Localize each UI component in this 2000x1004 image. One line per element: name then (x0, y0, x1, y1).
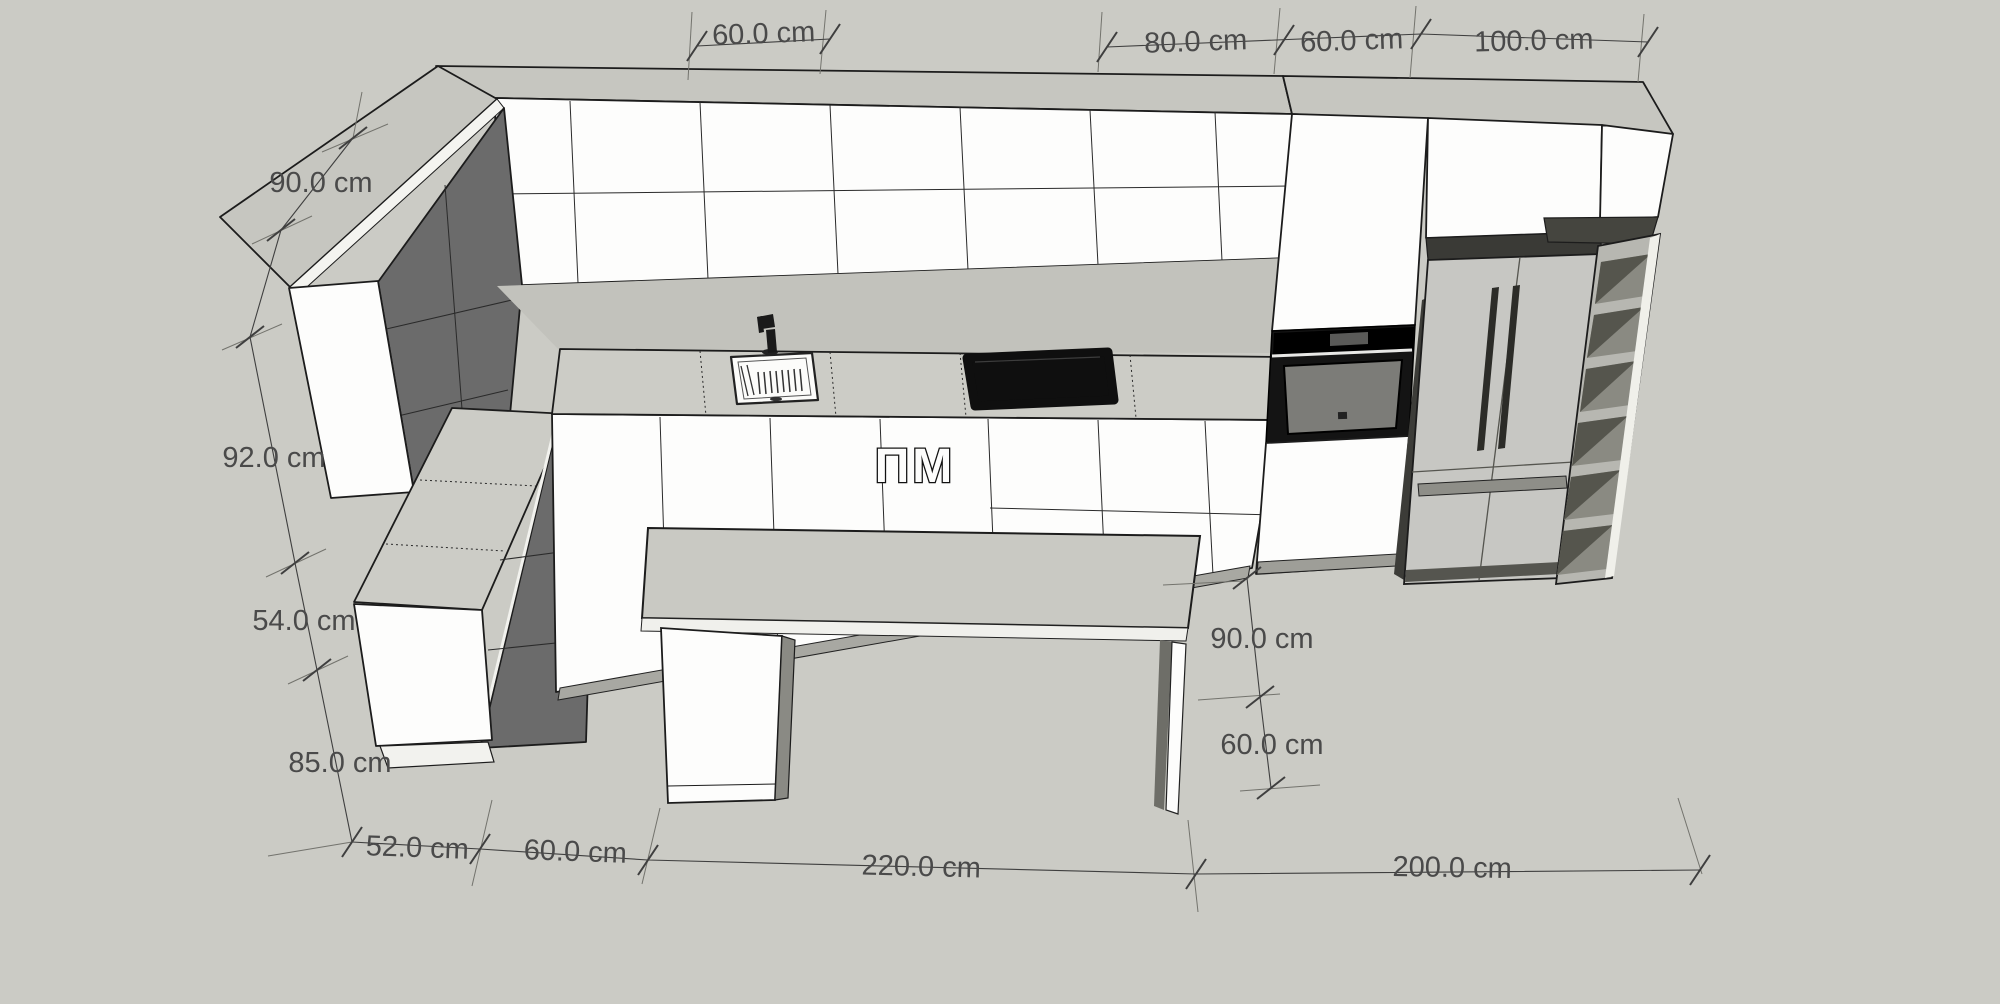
sink (731, 353, 818, 404)
oven-window (1284, 360, 1402, 434)
table-top (642, 528, 1200, 628)
dim-label: 60.0 cm (1300, 23, 1404, 59)
dim-label: 52.0 cm (365, 830, 469, 866)
dim-label: 60.0 cm (712, 16, 816, 52)
dim-label: 220.0 cm (861, 849, 981, 884)
dim-label: 60.0 cm (1220, 729, 1323, 761)
dim-label: 92.0 cm (222, 442, 325, 474)
table-pedestal (661, 628, 782, 803)
dim-label: 85.0 cm (288, 747, 391, 779)
cooktop (967, 352, 1114, 406)
dim-label: 200.0 cm (1392, 851, 1512, 885)
dim-label: 90.0 cm (269, 167, 372, 199)
3d-viewport[interactable]: ПМ (0, 0, 2000, 1004)
countertop (552, 349, 1282, 420)
dim-label: 100.0 cm (1474, 23, 1594, 58)
dim-label: 90.0 cm (1210, 623, 1313, 655)
kitchen-drawing: ПМ (0, 0, 2000, 1004)
dim-label: 54.0 cm (252, 605, 355, 637)
dishwasher-label: ПМ (875, 440, 955, 493)
dim-label: 60.0 cm (523, 834, 627, 870)
dim-label: 80.0 cm (1144, 24, 1248, 60)
